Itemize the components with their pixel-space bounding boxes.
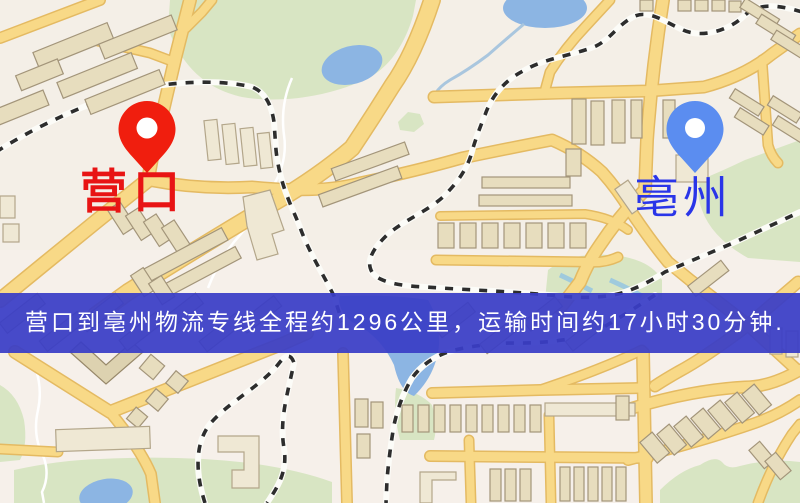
destination-city-label: 亳州 [634,175,732,220]
route-banner: 营口到亳州物流专线全程约1296公里，运输时间约17小时30分钟. [0,293,800,353]
pin-hole [137,118,158,139]
map-canvas[interactable]: 营口 亳州 营口到亳州物流专线全程约1296公里，运输时间约17小时30分钟. [0,0,800,503]
route-banner-text: 营口到亳州物流专线全程约1296公里，运输时间约17小时30分钟. [25,293,785,353]
map-graphic [0,0,800,503]
pin-hole [685,118,705,138]
origin-city-label: 营口 [80,168,186,215]
